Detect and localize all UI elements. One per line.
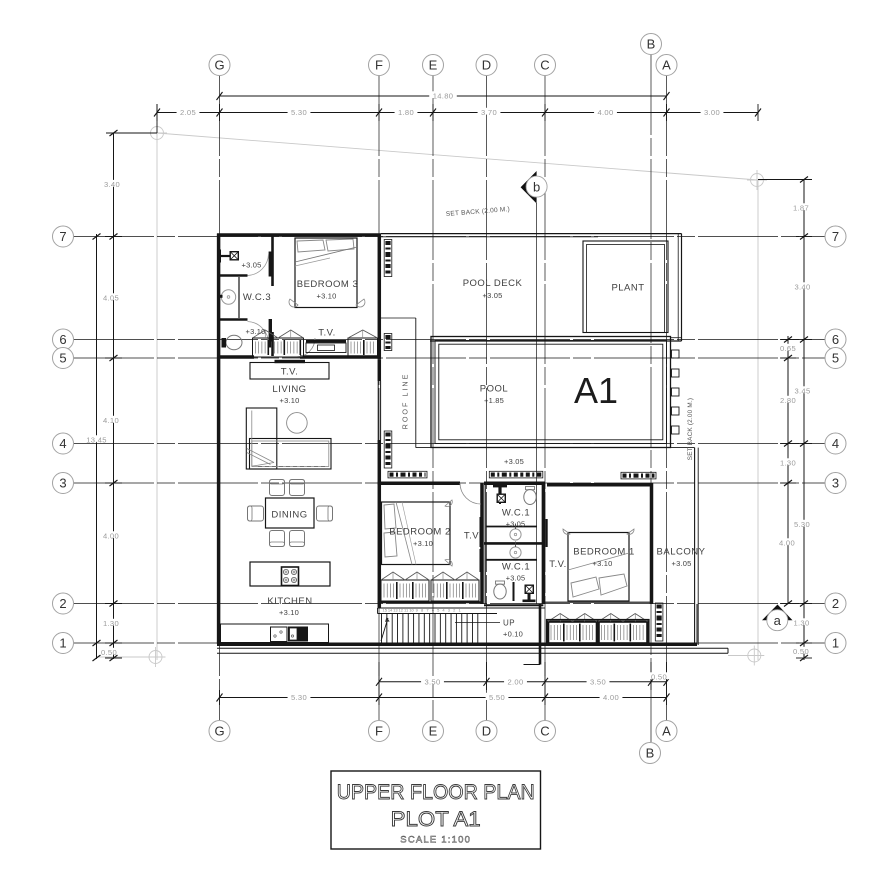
svg-text:5.30: 5.30 xyxy=(794,520,810,529)
svg-text:BEDROOM 1: BEDROOM 1 xyxy=(573,547,635,558)
svg-text:LIVING: LIVING xyxy=(272,384,306,395)
svg-text:C: C xyxy=(540,58,549,73)
svg-text:6: 6 xyxy=(832,332,839,347)
svg-text:G: G xyxy=(214,58,224,73)
svg-text:a: a xyxy=(774,613,782,628)
svg-text:D: D xyxy=(482,58,491,73)
svg-text:1.30: 1.30 xyxy=(794,619,810,628)
svg-text:b: b xyxy=(533,180,540,195)
svg-text:+3.05: +3.05 xyxy=(483,291,503,300)
svg-text:+0.10: +0.10 xyxy=(503,630,523,639)
svg-text:0.65: 0.65 xyxy=(780,344,796,353)
svg-text:2: 2 xyxy=(832,596,839,611)
svg-text:+3.05: +3.05 xyxy=(504,457,524,466)
svg-text:7: 7 xyxy=(832,229,839,244)
svg-text:3: 3 xyxy=(832,476,839,491)
svg-text:4.05: 4.05 xyxy=(103,294,119,303)
svg-text:1.80: 1.80 xyxy=(398,108,414,117)
svg-text:+3.10: +3.10 xyxy=(280,396,300,405)
svg-text:4: 4 xyxy=(832,436,839,451)
svg-text:E: E xyxy=(429,58,438,73)
svg-text:3.50: 3.50 xyxy=(590,677,606,686)
svg-text:4.00: 4.00 xyxy=(603,693,619,702)
svg-text:A1: A1 xyxy=(574,370,618,411)
svg-text:F: F xyxy=(375,58,383,73)
svg-text:5: 5 xyxy=(832,351,839,366)
svg-text:T.V.: T.V. xyxy=(318,328,336,339)
svg-text:10: 10 xyxy=(409,608,414,613)
svg-text:PLANT: PLANT xyxy=(611,283,644,294)
svg-text:BALCONY: BALCONY xyxy=(657,547,706,558)
svg-text:D: D xyxy=(482,724,491,739)
svg-text:4.00: 4.00 xyxy=(103,532,119,541)
svg-text:2.00: 2.00 xyxy=(508,677,524,686)
svg-text:1.30: 1.30 xyxy=(780,459,796,468)
svg-text:F: F xyxy=(375,724,383,739)
svg-text:12: 12 xyxy=(399,608,404,613)
svg-text:C: C xyxy=(540,724,549,739)
svg-text:3: 3 xyxy=(59,476,66,491)
svg-text:0.50: 0.50 xyxy=(651,673,667,682)
svg-text:B: B xyxy=(647,37,656,52)
svg-text:W.C.1: W.C.1 xyxy=(502,508,530,519)
svg-text:2.80: 2.80 xyxy=(780,396,796,405)
svg-text:1.87: 1.87 xyxy=(793,204,809,213)
svg-text:UPPER FLOOR PLAN: UPPER FLOOR PLAN xyxy=(337,781,535,804)
svg-text:5.30: 5.30 xyxy=(291,108,307,117)
svg-text:+3.05: +3.05 xyxy=(242,261,262,270)
svg-text:7: 7 xyxy=(59,229,66,244)
svg-text:0.50: 0.50 xyxy=(793,647,809,656)
svg-text:W.C.3: W.C.3 xyxy=(243,292,271,303)
svg-text:4.00: 4.00 xyxy=(779,539,795,548)
svg-text:13.45: 13.45 xyxy=(86,436,107,445)
svg-text:6: 6 xyxy=(59,332,66,347)
svg-text:+3.10: +3.10 xyxy=(279,608,299,617)
svg-text:T.V.: T.V. xyxy=(281,367,299,378)
svg-text:14.80: 14.80 xyxy=(433,92,454,101)
svg-text:3.70: 3.70 xyxy=(481,108,497,117)
svg-text:A: A xyxy=(662,724,671,739)
svg-text:A: A xyxy=(662,58,671,73)
svg-text:2: 2 xyxy=(59,596,66,611)
svg-text:+3.10: +3.10 xyxy=(593,559,613,568)
svg-text:+1.85: +1.85 xyxy=(484,396,504,405)
svg-text:POOL DECK: POOL DECK xyxy=(463,278,523,289)
svg-text:3.50: 3.50 xyxy=(425,677,441,686)
svg-text:4.00: 4.00 xyxy=(598,108,614,117)
svg-text:1: 1 xyxy=(59,636,66,651)
svg-text:+3.10: +3.10 xyxy=(413,539,433,548)
svg-text:POOL: POOL xyxy=(480,384,508,395)
svg-text:E: E xyxy=(429,724,438,739)
svg-text:BEDROOM 3: BEDROOM 3 xyxy=(297,279,359,290)
svg-text:2.05: 2.05 xyxy=(180,108,196,117)
svg-text:3.45: 3.45 xyxy=(795,387,811,396)
svg-text:W.C.1: W.C.1 xyxy=(502,562,530,573)
svg-text:T.V.: T.V. xyxy=(549,559,567,570)
svg-text:+3.10: +3.10 xyxy=(317,292,337,301)
svg-text:4.10: 4.10 xyxy=(103,416,119,425)
svg-text:ROOF LINE: ROOF LINE xyxy=(401,373,410,430)
svg-text:PLOT A1: PLOT A1 xyxy=(391,808,481,831)
svg-text:0.50: 0.50 xyxy=(101,648,117,657)
svg-text:SET BACK (2.00 M.): SET BACK (2.00 M.) xyxy=(687,398,694,460)
svg-text:5.30: 5.30 xyxy=(291,693,307,702)
svg-text:DINING: DINING xyxy=(271,510,307,521)
svg-text:T.V: T.V xyxy=(464,531,479,542)
svg-text:3.40: 3.40 xyxy=(104,180,120,189)
svg-text:BEDROOM 2: BEDROOM 2 xyxy=(389,527,451,538)
svg-text:G: G xyxy=(214,724,224,739)
svg-text:5.50: 5.50 xyxy=(489,693,505,702)
svg-text:1: 1 xyxy=(832,636,839,651)
svg-text:+3.05: +3.05 xyxy=(672,559,692,568)
svg-text:UP: UP xyxy=(503,619,515,628)
svg-text:+3.05: +3.05 xyxy=(506,574,525,583)
svg-text:KITCHEN: KITCHEN xyxy=(267,596,312,607)
svg-text:B: B xyxy=(646,746,655,761)
svg-text:3.00: 3.00 xyxy=(704,108,720,117)
svg-text:SCALE 1:100: SCALE 1:100 xyxy=(400,835,471,846)
svg-text:1.30: 1.30 xyxy=(103,619,119,628)
svg-text:4: 4 xyxy=(59,436,66,451)
svg-text:5: 5 xyxy=(59,351,66,366)
svg-text:3.40: 3.40 xyxy=(795,283,811,292)
